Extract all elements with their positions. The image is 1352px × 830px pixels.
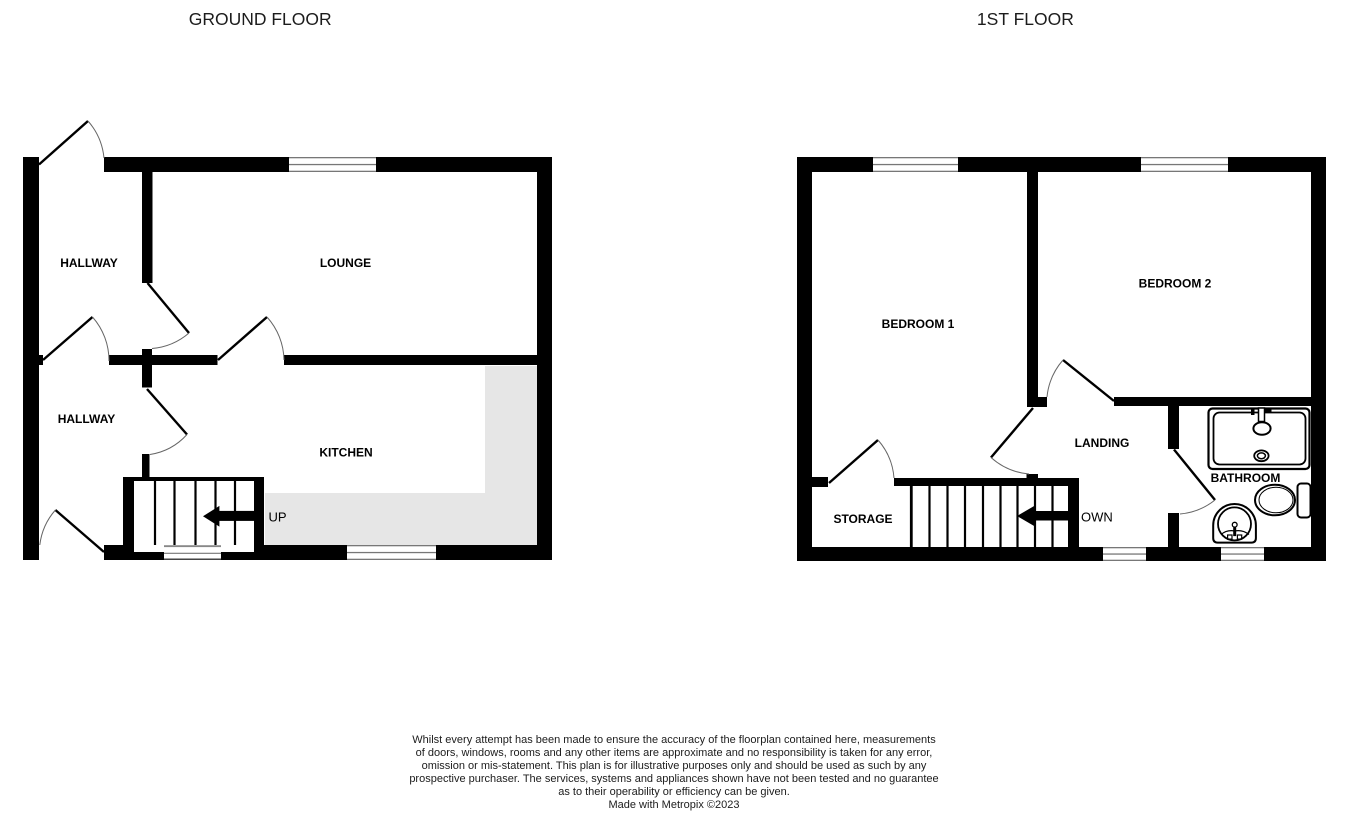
svg-text:KITCHEN: KITCHEN	[319, 446, 372, 460]
svg-text:prospective purchaser. The ser: prospective purchaser. The services, sys…	[409, 773, 938, 785]
svg-text:Whilst every attempt has been: Whilst every attempt has been made to en…	[412, 734, 936, 746]
svg-text:BATHROOM: BATHROOM	[1211, 471, 1281, 485]
svg-text:HALLWAY: HALLWAY	[58, 412, 116, 426]
svg-text:STORAGE: STORAGE	[833, 512, 892, 526]
svg-text:UP: UP	[269, 510, 287, 525]
svg-text:LANDING: LANDING	[1075, 436, 1130, 450]
svg-text:as to their operability or eff: as to their operability or efficiency ca…	[558, 786, 790, 798]
svg-text:1ST FLOOR: 1ST FLOOR	[977, 9, 1074, 29]
svg-text:LOUNGE: LOUNGE	[320, 256, 371, 270]
svg-text:GROUND FLOOR: GROUND FLOOR	[189, 9, 332, 29]
svg-text:omission or mis-statement. Thi: omission or mis-statement. This plan is …	[422, 760, 927, 772]
svg-text:of doors, windows, rooms and a: of doors, windows, rooms and any other i…	[416, 747, 933, 759]
svg-text:Made with Metropix ©2023: Made with Metropix ©2023	[608, 799, 739, 811]
svg-text:HALLWAY: HALLWAY	[60, 256, 118, 270]
svg-text:BEDROOM 2: BEDROOM 2	[1139, 277, 1212, 291]
svg-text:BEDROOM 1: BEDROOM 1	[882, 317, 955, 331]
svg-text:OWN: OWN	[1081, 510, 1113, 525]
